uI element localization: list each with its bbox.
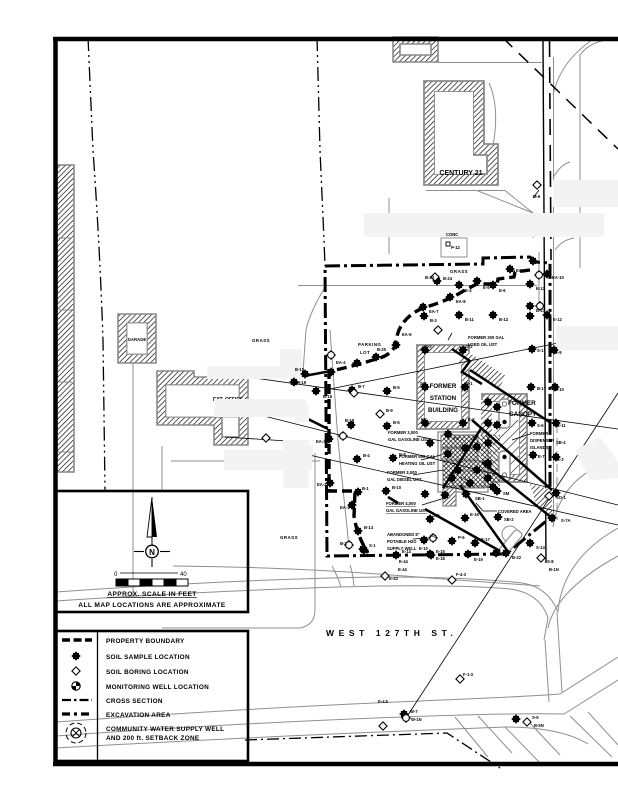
svg-text:GRASS: GRASS — [450, 269, 468, 274]
svg-text:B-6: B-6 — [393, 420, 400, 425]
svg-text:CONC: CONC — [446, 232, 458, 237]
svg-text:DISPENSER: DISPENSER — [530, 438, 554, 443]
svg-text:T-3: T-3 — [460, 476, 467, 481]
svg-text:SOIL SAMPLE LOCATION: SOIL SAMPLE LOCATION — [106, 654, 190, 661]
svg-text:P-4: P-4 — [430, 534, 437, 539]
svg-text:S-2: S-2 — [420, 381, 427, 386]
svg-text:FORMER: FORMER — [530, 431, 548, 436]
svg-text:ALL MAP LOCATIONS ARE APPROXIM: ALL MAP LOCATIONS ARE APPROXIMATE — [78, 602, 226, 609]
svg-text:E-44: E-44 — [398, 567, 408, 572]
svg-text:M-6: M-6 — [533, 194, 541, 199]
svg-text:S-7A: S-7A — [561, 518, 571, 523]
svg-text:E-15: E-15 — [436, 549, 446, 554]
svg-text:B-1: B-1 — [362, 486, 369, 491]
svg-text:B-20: B-20 — [377, 347, 387, 352]
svg-text:USED OIL UST: USED OIL UST — [468, 342, 498, 347]
svg-text:E-4.5: E-4.5 — [378, 699, 389, 704]
svg-text:S-9: S-9 — [532, 715, 539, 720]
svg-text:N: N — [149, 548, 155, 557]
svg-text:SB-4: SB-4 — [556, 440, 566, 445]
svg-text:F-1-3: F-1-3 — [463, 672, 474, 677]
svg-text:E-43: E-43 — [389, 576, 399, 581]
svg-text:E-9: E-9 — [555, 350, 562, 355]
svg-text:S-3: S-3 — [425, 344, 432, 349]
svg-text:FORMER 4,000: FORMER 4,000 — [386, 501, 416, 506]
svg-text:E-2: E-2 — [468, 417, 475, 422]
svg-text:CROSS SECTION: CROSS SECTION — [106, 698, 163, 705]
svg-text:CENTURY 21: CENTURY 21 — [439, 170, 482, 177]
svg-text:E-11: E-11 — [557, 423, 566, 428]
svg-text:W-1N: W-1N — [411, 717, 422, 722]
svg-text:B-4: B-4 — [363, 453, 370, 458]
svg-text:B-2: B-2 — [340, 541, 347, 546]
svg-text:COMMUNITY WATER SUPPLY WELL: COMMUNITY WATER SUPPLY WELL — [106, 726, 224, 733]
svg-text:W-7: W-7 — [410, 709, 418, 714]
svg-text:WEST 127TH ST.: WEST 127TH ST. — [326, 628, 457, 638]
svg-text:EA-6: EA-6 — [402, 332, 412, 337]
svg-text:E-4: E-4 — [465, 288, 472, 293]
svg-text:E-1: E-1 — [466, 381, 473, 386]
svg-text:E-7: E-7 — [538, 454, 545, 459]
svg-text:B-21: B-21 — [536, 308, 546, 313]
svg-text:FORMER 3,000: FORMER 3,000 — [388, 430, 418, 435]
svg-text:APPROX. SCALE IN FEET: APPROX. SCALE IN FEET — [107, 591, 196, 598]
svg-text:GAL GASOLINE UST: GAL GASOLINE UST — [386, 508, 428, 513]
svg-text:S-1: S-1 — [369, 543, 376, 548]
svg-text:SB-1: SB-1 — [475, 496, 485, 501]
svg-text:E-10: E-10 — [419, 546, 429, 551]
svg-text:S-9: S-9 — [433, 513, 440, 518]
svg-text:T-2: T-2 — [453, 462, 460, 467]
svg-text:B-18: B-18 — [345, 418, 355, 423]
svg-text:MONITORING WELL LOCATION: MONITORING WELL LOCATION — [106, 684, 209, 691]
svg-text:B-19: B-19 — [297, 380, 307, 385]
svg-text:B-5: B-5 — [393, 385, 400, 390]
svg-text:SM: SM — [503, 491, 510, 496]
svg-text:GRASS: GRASS — [252, 338, 270, 343]
svg-text:PROPERTY BOUNDARY: PROPERTY BOUNDARY — [106, 638, 185, 645]
svg-text:STATION: STATION — [430, 395, 457, 402]
svg-text:SOIL BORING LOCATION: SOIL BORING LOCATION — [106, 669, 189, 676]
svg-text:E-44: E-44 — [399, 559, 409, 564]
svg-text:40: 40 — [180, 572, 187, 578]
svg-text:B-1N: B-1N — [549, 567, 559, 572]
svg-text:E-18: E-18 — [436, 556, 446, 561]
svg-text:SUPPLY WELL: SUPPLY WELL — [387, 546, 417, 551]
svg-text:P-12: P-12 — [451, 245, 461, 250]
svg-text:EXCAVATION AREA: EXCAVATION AREA — [106, 712, 171, 719]
svg-text:E-5: E-5 — [483, 285, 490, 290]
svg-text:E-16: E-16 — [470, 512, 480, 517]
svg-text:EA-2: EA-2 — [317, 482, 327, 487]
svg-text:B-5N: B-5N — [534, 723, 544, 728]
svg-text:EA-7: EA-7 — [429, 309, 439, 314]
svg-text:S-6: S-6 — [537, 423, 544, 428]
svg-text:E-10: E-10 — [555, 387, 565, 392]
svg-text:CANOPY: CANOPY — [509, 411, 537, 418]
svg-text:LOT: LOT — [360, 350, 370, 355]
svg-text:S-1: S-1 — [537, 348, 544, 353]
svg-text:EA-9: EA-9 — [516, 268, 526, 273]
svg-text:S-8: S-8 — [547, 559, 554, 564]
svg-text:E-19: E-19 — [474, 557, 484, 562]
svg-text:F-4-3: F-4-3 — [456, 572, 467, 577]
svg-text:GRASS: GRASS — [280, 535, 298, 540]
svg-text:E-13: E-13 — [536, 286, 546, 291]
svg-text:E-3: E-3 — [557, 457, 564, 462]
svg-text:E-12: E-12 — [553, 317, 563, 322]
svg-text:FORMER: FORMER — [430, 383, 457, 390]
svg-text:B-12: B-12 — [499, 317, 509, 322]
svg-text:EA-3: EA-3 — [316, 439, 326, 444]
svg-text:B-16: B-16 — [323, 394, 333, 399]
svg-text:FORMER 3,000: FORMER 3,000 — [387, 470, 417, 475]
svg-text:SB-2: SB-2 — [504, 517, 514, 522]
svg-text:COVERED AREA: COVERED AREA — [498, 509, 532, 514]
svg-text:E-6: E-6 — [499, 288, 506, 293]
svg-text:FORMER: FORMER — [508, 400, 536, 407]
svg-text:B-24: B-24 — [443, 276, 453, 281]
svg-text:SO-1: SO-1 — [556, 495, 566, 500]
svg-text:B-17: B-17 — [537, 386, 547, 391]
svg-text:P-6: P-6 — [458, 535, 465, 540]
svg-text:HEATING OIL UST: HEATING OIL UST — [399, 461, 436, 466]
svg-text:E-17: E-17 — [481, 537, 491, 542]
svg-text:EA-10: EA-10 — [552, 275, 565, 280]
svg-text:FORMER 300 GAL: FORMER 300 GAL — [468, 335, 505, 340]
svg-text:AND 200 ft. SETBACK ZONE: AND 200 ft. SETBACK ZONE — [106, 735, 200, 742]
svg-text:POTABLE H2O: POTABLE H2O — [387, 539, 417, 544]
svg-text:B-11: B-11 — [465, 317, 475, 322]
svg-text:FORMER 550 GAL: FORMER 550 GAL — [399, 454, 436, 459]
svg-text:PARKING: PARKING — [358, 342, 382, 347]
svg-text:EA-1: EA-1 — [340, 505, 350, 510]
svg-text:GAL GASOLINE UST: GAL GASOLINE UST — [388, 437, 430, 442]
svg-text:S-14: S-14 — [536, 545, 546, 550]
svg-text:EA-5: EA-5 — [352, 362, 362, 367]
svg-text:ISLANDS: ISLANDS — [530, 445, 549, 450]
svg-text:B-10: B-10 — [392, 485, 402, 490]
svg-text:B-15: B-15 — [295, 367, 305, 372]
svg-text:EA-4: EA-4 — [336, 360, 346, 365]
svg-text:GARAGE: GARAGE — [128, 337, 147, 342]
svg-text:GAL DIESEL UST: GAL DIESEL UST — [387, 477, 422, 482]
svg-text:BUILDING: BUILDING — [428, 407, 458, 414]
svg-text:B-3: B-3 — [430, 318, 437, 323]
svg-text:EA-8: EA-8 — [456, 299, 466, 304]
svg-text:B-9: B-9 — [386, 408, 393, 413]
svg-text:B-22: B-22 — [512, 555, 522, 560]
svg-text:B-7: B-7 — [358, 384, 365, 389]
svg-text:T-1: T-1 — [453, 436, 460, 441]
svg-text:KX: KX — [421, 417, 427, 422]
svg-text:B-23: B-23 — [425, 275, 435, 280]
svg-text:ABANDONED 8": ABANDONED 8" — [387, 532, 420, 537]
svg-text:B-14: B-14 — [364, 525, 374, 530]
